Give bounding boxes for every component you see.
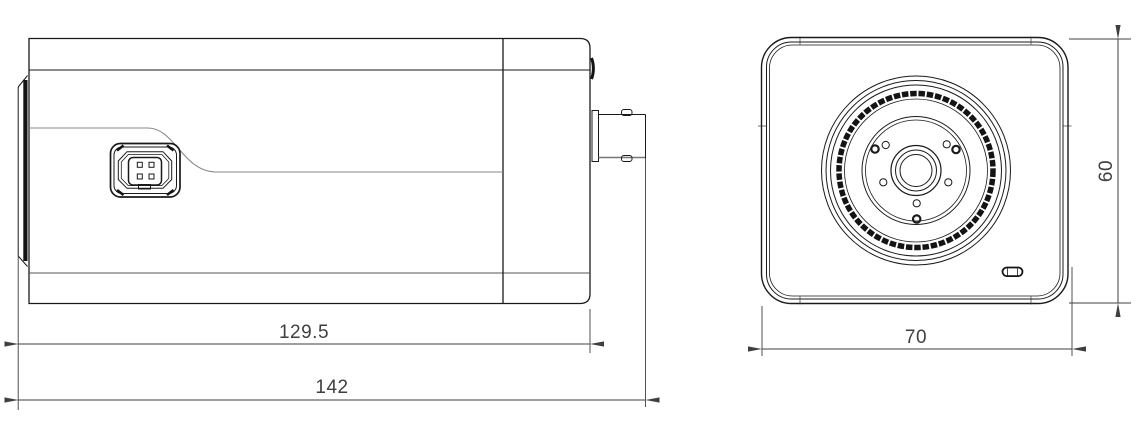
led-indicator-window (1003, 268, 1023, 277)
connector-pin-1 (137, 162, 142, 167)
side-body-outline (29, 39, 590, 304)
bnc-connector (592, 110, 646, 162)
screw-upper-right (952, 146, 959, 153)
lens-aperture (900, 155, 932, 187)
mount-disc-outer (862, 117, 970, 225)
ring-inner-edge (845, 99, 988, 242)
side-view: 129.5 142 (18, 39, 645, 411)
hole-mid-right (945, 179, 952, 186)
lens-barrel-outer (891, 146, 941, 196)
connector-inner-bezel (114, 147, 177, 194)
bnc-flange (592, 111, 599, 162)
dimension-body-length: 129.5 (18, 256, 590, 410)
lens-mount-flange (18, 76, 27, 267)
dimension-label-front-height: 60 (1096, 160, 1117, 182)
front-body-outline (762, 38, 1069, 304)
mount-disc-inner (866, 120, 967, 221)
dimension-front-height: 60 (1069, 39, 1131, 303)
dimension-front-width: 70 (762, 267, 1072, 356)
screw-upper-left (871, 145, 878, 152)
hole-mid-left (880, 179, 887, 186)
ring-outer-2 (826, 81, 1006, 261)
hole-bottom-center (913, 200, 920, 207)
screw-bottom-center (913, 215, 920, 222)
bnc-bayonet-lug-bottom (622, 156, 633, 162)
led-indicator (1003, 268, 1023, 277)
lens-barrel-mid (896, 150, 937, 191)
ring-outer-3 (831, 85, 1002, 256)
connector-socket (129, 158, 162, 186)
front-face-panel-inner (770, 45, 1061, 296)
ring-outer-1 (822, 76, 1011, 265)
drawing-canvas: 129.5 142 (0, 0, 1145, 430)
connector-pin-2 (149, 162, 154, 167)
dimension-label-body-length: 129.5 (279, 322, 329, 343)
lens-mount-rings (822, 76, 1011, 265)
hole-upper-right (943, 141, 950, 148)
side-contour-curve (29, 128, 503, 172)
connector-pin-3 (137, 174, 142, 179)
hole-upper-left (882, 141, 889, 148)
rear-edge-ridge (592, 58, 594, 79)
dimension-label-front-width: 70 (905, 327, 927, 348)
connector-pin-4 (149, 174, 154, 179)
camera-technical-drawing: 129.5 142 (0, 0, 1145, 430)
dimension-label-total-length: 142 (315, 377, 348, 398)
front-view: 70 60 (758, 37, 1131, 357)
four-pin-connector (111, 144, 181, 198)
dimension-total-length: 142 (19, 158, 646, 407)
